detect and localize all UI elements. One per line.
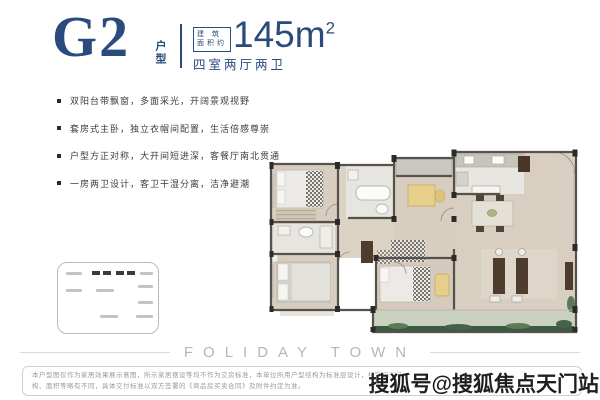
key-plan-label xyxy=(66,272,82,275)
key-plan-label xyxy=(100,315,118,318)
key-plan-label xyxy=(136,315,153,318)
unit-type-label: 户型 xyxy=(152,40,168,66)
bullet-icon xyxy=(57,154,61,158)
bullet-icon xyxy=(57,181,61,185)
floorplan-flyer: G2 户型 建 筑 面积约 145m2 四室两厅两卫 双阳台带飘窗，多面采光，开… xyxy=(0,0,600,400)
feature-item: 套房式主卧，独立衣帽间配置，生活倍感尊崇 xyxy=(57,122,280,135)
area-badge-line2: 面积约 xyxy=(197,39,227,48)
floor-plan xyxy=(268,146,582,342)
bullet-icon xyxy=(57,126,61,130)
header-divider xyxy=(180,24,182,68)
building-block-icon xyxy=(127,271,135,275)
key-plan-label xyxy=(96,289,114,292)
watermark: 搜狐号@搜狐焦点天门站 xyxy=(369,368,599,398)
key-plan-label xyxy=(140,272,153,275)
feature-text: 户型方正对称，大开间短进深，客餐厅南北贯通 xyxy=(70,149,280,162)
room-bedroom-north xyxy=(276,170,323,220)
key-plan-label xyxy=(138,285,153,288)
building-block-icon xyxy=(92,271,100,275)
area-value: 145m2 xyxy=(233,16,335,53)
room-bathroom-center xyxy=(346,166,394,218)
divider-line-right xyxy=(430,352,580,353)
feature-item: 双阳台带飘窗，多面采光，开阔景观视野 xyxy=(57,94,280,107)
feature-text: 一房两卫设计，客卫干湿分离，洁净避潮 xyxy=(70,177,250,190)
building-block-icon xyxy=(103,271,111,275)
feature-text: 套房式主卧，独立衣帽间配置，生活倍感尊崇 xyxy=(70,122,270,135)
key-plan-label xyxy=(66,289,82,292)
divider-line-left xyxy=(20,352,170,353)
site-key-plan xyxy=(57,262,159,334)
feature-list: 双阳台带飘窗，多面采光，开阔景观视野 套房式主卧，独立衣帽间配置，生活倍感尊崇 … xyxy=(57,94,280,204)
bullet-icon xyxy=(57,99,61,103)
room-kitchen xyxy=(456,154,530,195)
building-block-icon xyxy=(116,271,124,275)
area-number: 145m xyxy=(233,14,326,55)
layout-description: 四室两厅两卫 xyxy=(193,54,286,73)
area-superscript: 2 xyxy=(326,19,335,38)
brand-divider: FOLIDAY TOWN xyxy=(20,344,580,361)
key-plan-label xyxy=(138,301,153,304)
unit-code: G2 xyxy=(52,8,130,66)
room-bathroom-left xyxy=(273,224,335,253)
feature-text: 双阳台带飘窗，多面采光，开阔景观视野 xyxy=(70,94,250,107)
brand-text: FOLIDAY TOWN xyxy=(170,344,430,361)
area-badge: 建 筑 面积约 xyxy=(193,27,231,52)
area-badge-line1: 建 筑 xyxy=(197,30,227,39)
feature-item: 一房两卫设计，客卫干湿分离，洁净避潮 xyxy=(57,177,280,190)
feature-item: 户型方正对称，大开间短进深，客餐厅南北贯通 xyxy=(57,149,280,162)
